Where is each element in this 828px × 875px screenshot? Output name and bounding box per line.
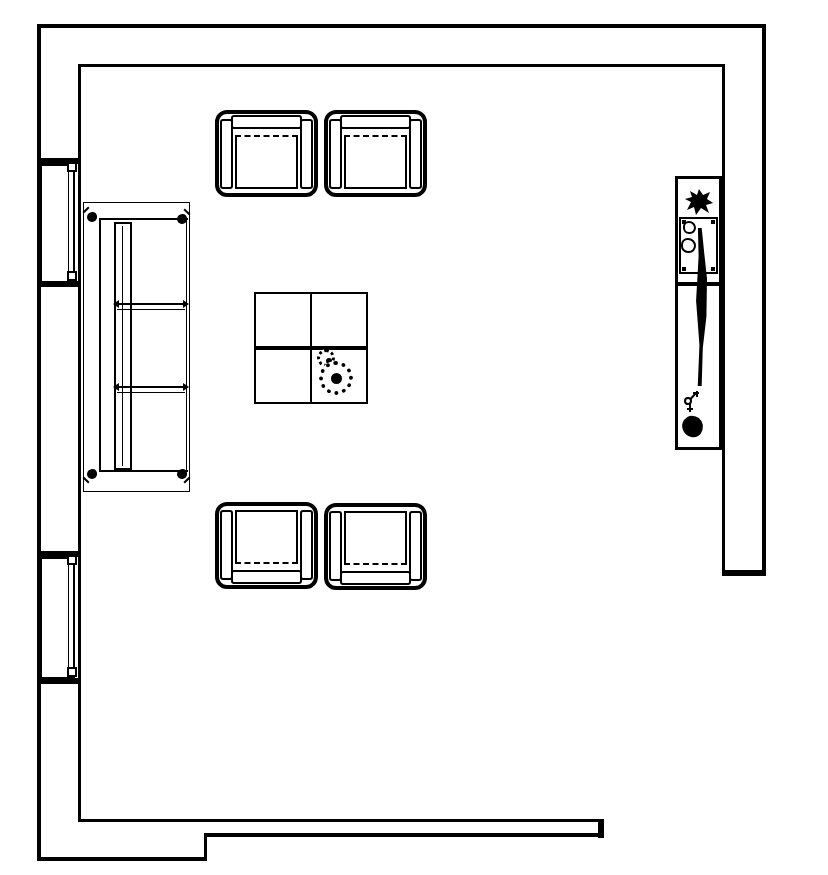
faucet-icon (682, 389, 704, 414)
sofa-armrest-top (99, 218, 188, 220)
wall-bottom-step (204, 833, 207, 861)
sofa-backrest-line (122, 226, 123, 466)
armchair-arm-left (220, 119, 233, 189)
sofa-foot-top-left (87, 212, 97, 222)
armchair-backrest (231, 570, 302, 584)
armchair-bottom-left[interactable] (215, 502, 318, 589)
sofa-cushion-divider-2 (115, 386, 187, 388)
window-upper-pad-top (67, 162, 77, 172)
sofa-foot-bottom-right (177, 469, 187, 479)
basin-corner-tick (711, 220, 715, 224)
sofa-backrest-panel (114, 222, 132, 470)
armchair-front-line (338, 193, 413, 195)
sofa-foot-bottom-left (87, 469, 97, 479)
sofa-foot-top-right (177, 214, 187, 224)
window-upper-glass-line (68, 168, 69, 279)
armchair-front-line (338, 505, 413, 507)
wall-right-outer (762, 24, 766, 576)
window-lower-pad-top (67, 555, 77, 565)
armchair-arm-right (300, 510, 313, 580)
dish-icon-large (319, 361, 353, 395)
armchair-top-left[interactable] (215, 110, 318, 197)
dish-center-dot (331, 373, 342, 384)
window-upper-cap-bottom (37, 281, 81, 287)
wall-right-end-cap (722, 570, 766, 576)
armchair-arm-left (329, 511, 342, 581)
armchair-backrest (340, 571, 411, 585)
sofa-armrest-bottom (99, 470, 188, 472)
window-upper-pad-bottom (67, 271, 77, 281)
armchair-backrest (231, 115, 302, 129)
armchair-front-line (229, 504, 304, 506)
armchair-arm-left (220, 510, 233, 580)
wall-left-outer (37, 24, 41, 861)
armchair-arm-right (409, 119, 422, 189)
armchair-top-right[interactable] (324, 110, 427, 197)
wall-right-inner (722, 64, 725, 570)
window-lower-pad-bottom (67, 667, 77, 677)
window-lower-glass-line (68, 561, 69, 675)
window-lower-cap-bottom (37, 678, 81, 684)
window-upper-frame (40, 164, 75, 283)
armchair-backrest (340, 115, 411, 129)
wall-top-inner (78, 64, 725, 67)
armchair-bottom-right[interactable] (324, 503, 427, 590)
armchair-front-line (229, 193, 304, 195)
sofa-cushion-divider-2b (117, 392, 185, 393)
basin-corner-tick (682, 267, 686, 271)
armchair-seat (235, 135, 298, 189)
armchair-arm-right (409, 511, 422, 581)
sofa-back-edge (99, 218, 101, 472)
sofa-cushion-divider-1b (117, 309, 185, 310)
armchair-seat (235, 510, 298, 564)
floor-plan (0, 0, 828, 875)
sofa-cushion-divider-1 (115, 303, 187, 305)
armchair-seat (344, 511, 407, 565)
coffee-table-divider-horizontal (256, 346, 366, 350)
basin-knob-bottom (681, 238, 696, 253)
armchair-arm-right (300, 119, 313, 189)
basin-knob-top (683, 221, 696, 234)
wall-bottom-end-cap (598, 819, 604, 838)
sofa-front-edge (186, 218, 187, 472)
wall-bottom-outer-left (37, 857, 207, 861)
basin-corner-tick (711, 267, 715, 271)
wall-bottom-outer-right (204, 833, 604, 837)
plant-icon (684, 188, 714, 216)
wall-bottom-inner (78, 819, 604, 822)
wall-left-inner (78, 64, 81, 822)
wall-top-outer (37, 24, 766, 28)
window-lower-frame (40, 557, 75, 679)
armchair-arm-left (329, 119, 342, 189)
armchair-seat (344, 135, 407, 189)
